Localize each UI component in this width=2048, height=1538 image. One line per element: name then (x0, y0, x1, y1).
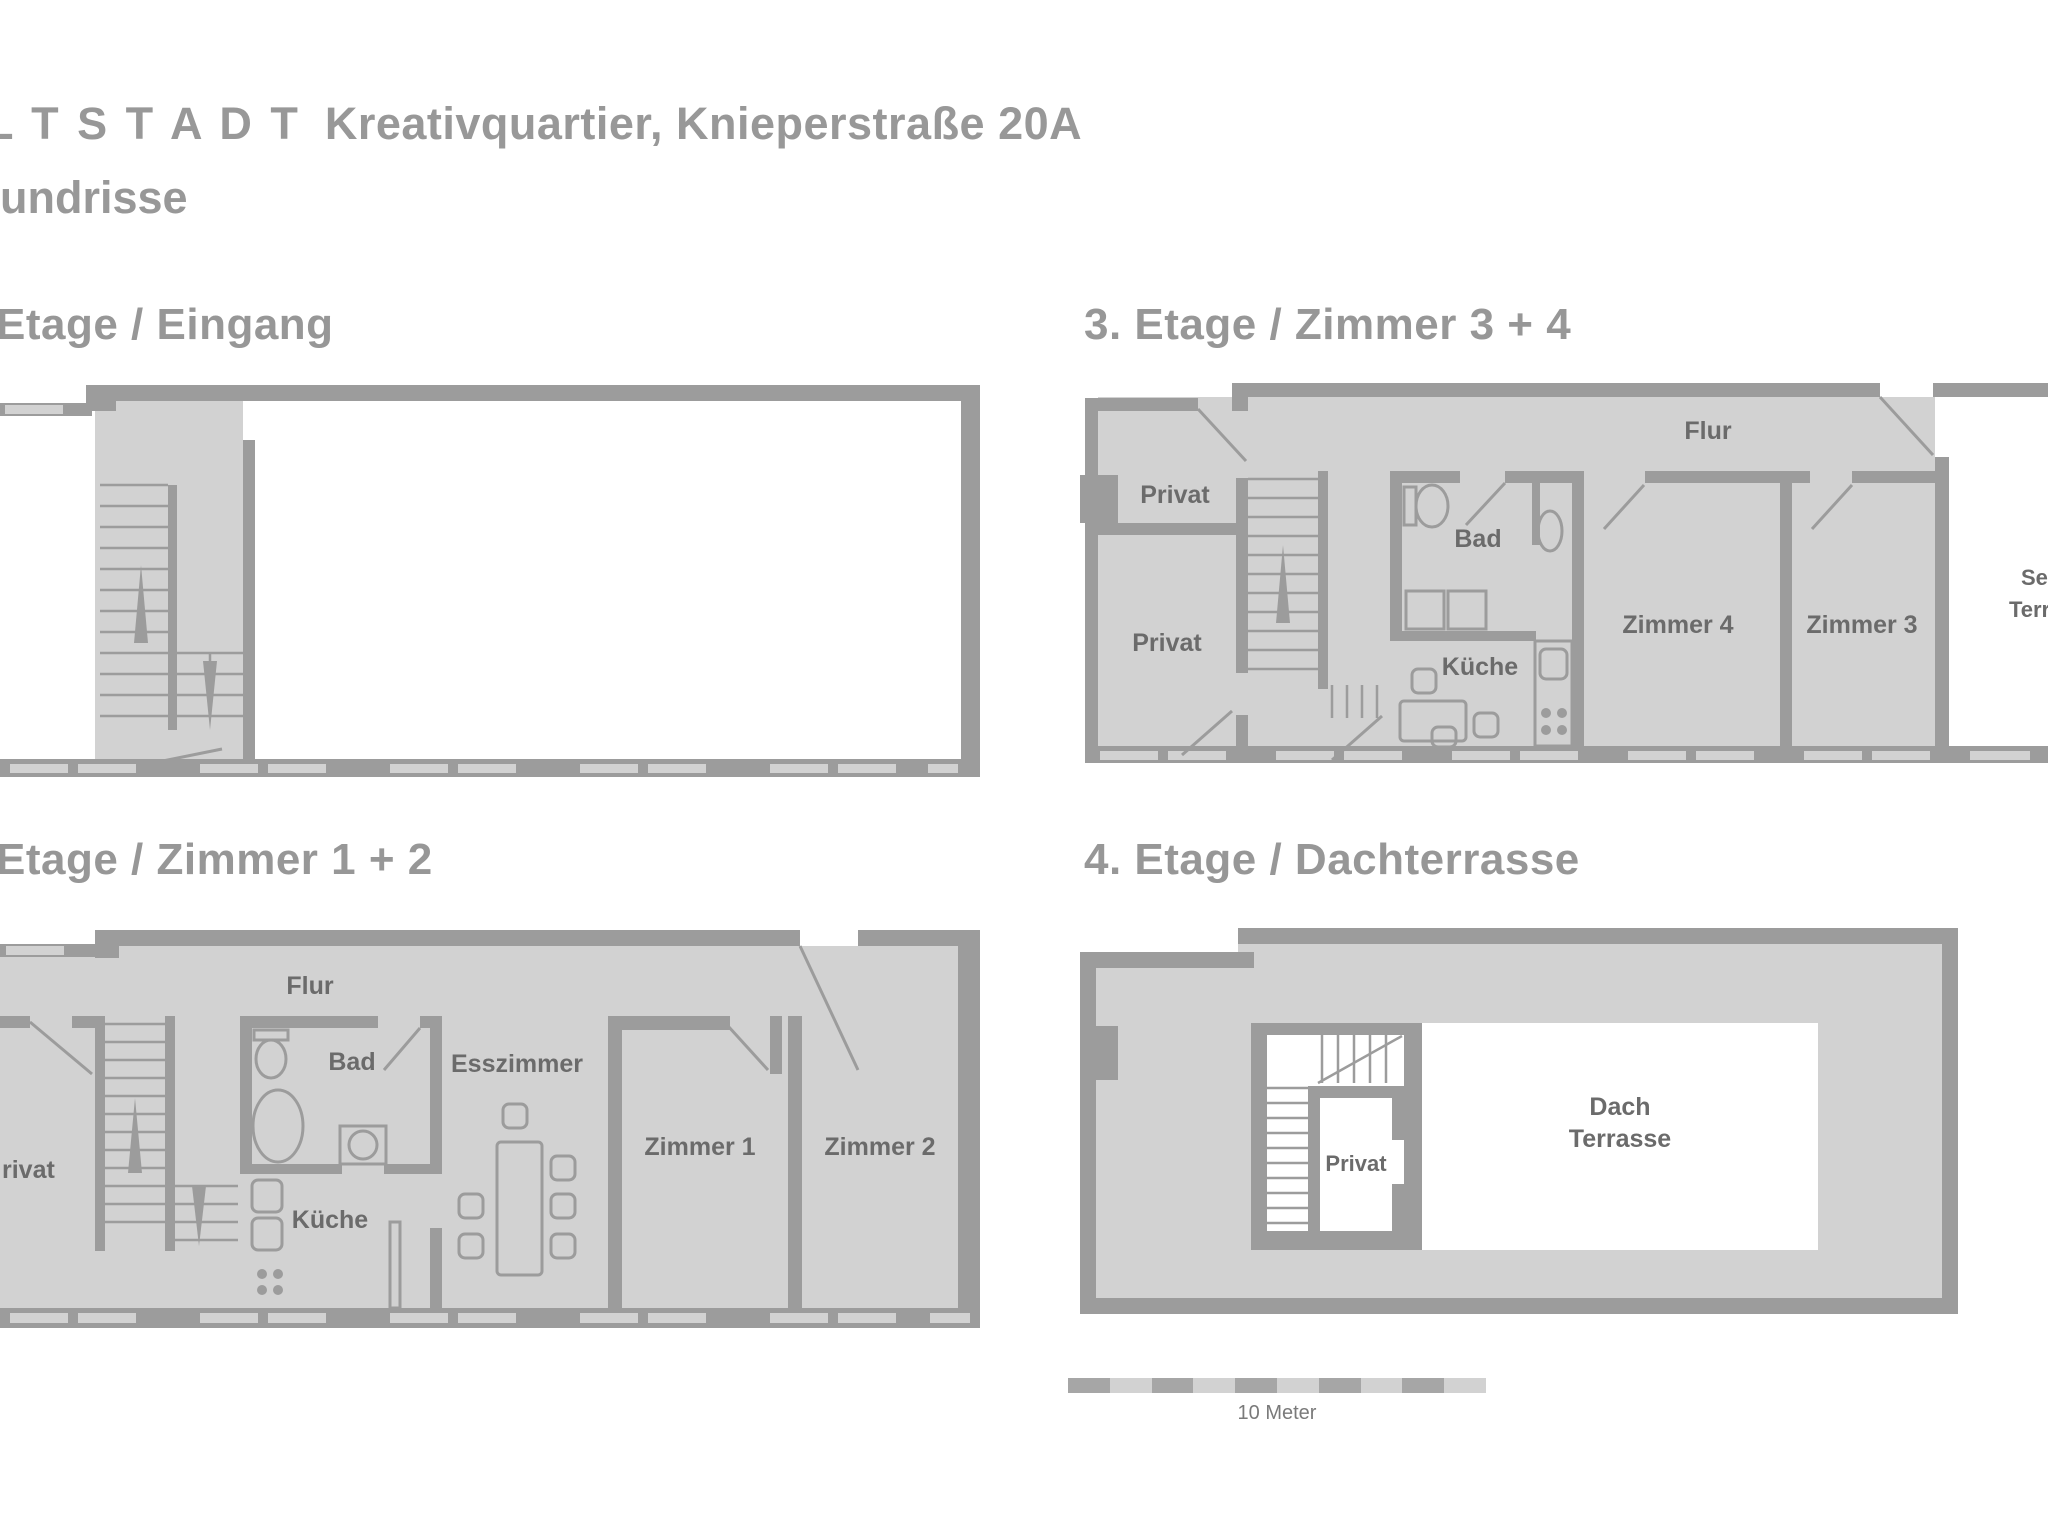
scale-bar-label: 10 Meter (1068, 1402, 1486, 1425)
room-label-esszimmer: Esszimmer (451, 1050, 583, 1078)
room-label-terrasse-1: Seiten (2021, 565, 2048, 590)
room-label-privat-top: Privat (1140, 481, 1210, 509)
room-label-zimmer1: Zimmer 1 (644, 1133, 755, 1161)
room-label-flur: Flur (286, 972, 333, 1000)
heading-floor2: Etage / Zimmer 1 + 2 (0, 835, 433, 885)
scale-bar-segment (1444, 1378, 1486, 1393)
heading-floor4: 4. Etage / Dachterrasse (1084, 835, 1580, 885)
page-title: L T S T A D TKreativquartier, Knieperstr… (0, 98, 1082, 150)
scale-bar-segment (1402, 1378, 1444, 1393)
room-label-zimmer4: Zimmer 4 (1622, 611, 1733, 639)
scale-bar-segment (1235, 1378, 1277, 1393)
scale-bar (1068, 1378, 1486, 1393)
heading-floor1: Etage / Eingang (0, 300, 334, 350)
brand-text: L T S T A D T (0, 98, 301, 149)
room-label-zimmer2: Zimmer 2 (824, 1133, 935, 1161)
room-label-dach-2: Terrasse (1569, 1125, 1671, 1153)
floor2-floor (0, 946, 958, 1308)
room-label-kueche: Küche (292, 1206, 369, 1234)
scale-bar-segment (1068, 1378, 1110, 1393)
scale-bar-segment (1277, 1378, 1319, 1393)
floorplan-floor2: Flur rivat Bad Küche Esszimmer Zimmer 1 … (0, 928, 980, 1334)
page-subtitle: undrisse (0, 172, 188, 224)
address-text: Kreativquartier, Knieperstraße 20A (325, 98, 1082, 149)
room-label-dach-1: Dach (1589, 1093, 1650, 1121)
room-label-privat: Privat (1132, 629, 1202, 657)
floorplan-floor4: Privat Dach Terrasse (1080, 928, 1970, 1330)
room-label-bad: Bad (1454, 525, 1501, 553)
floor1-floor (95, 401, 961, 759)
room-label-privat: Privat (1325, 1151, 1387, 1176)
scale-bar-segment (1152, 1378, 1194, 1393)
floorplan-floor3: Flur Privat Privat Bad Küche Zimmer 4 Zi… (1080, 383, 2048, 777)
scale-bar-segment (1319, 1378, 1361, 1393)
scale-bar-segment (1110, 1378, 1152, 1393)
heading-floor3: 3. Etage / Zimmer 3 + 4 (1084, 300, 1571, 350)
room-label-flur: Flur (1684, 417, 1731, 445)
room-label-terrasse-2: Terrasse (2009, 597, 2048, 622)
room-label-bad: Bad (328, 1048, 375, 1076)
floorplan-floor1 (0, 385, 980, 777)
room-label-zimmer3: Zimmer 3 (1806, 611, 1917, 639)
floorplan-sheet: L T S T A D TKreativquartier, Knieperstr… (0, 0, 2048, 1538)
scale-bar-segment (1193, 1378, 1235, 1393)
room-label-kueche: Küche (1442, 653, 1519, 681)
room-label-privat: rivat (2, 1156, 55, 1184)
scale-bar-segment (1361, 1378, 1403, 1393)
